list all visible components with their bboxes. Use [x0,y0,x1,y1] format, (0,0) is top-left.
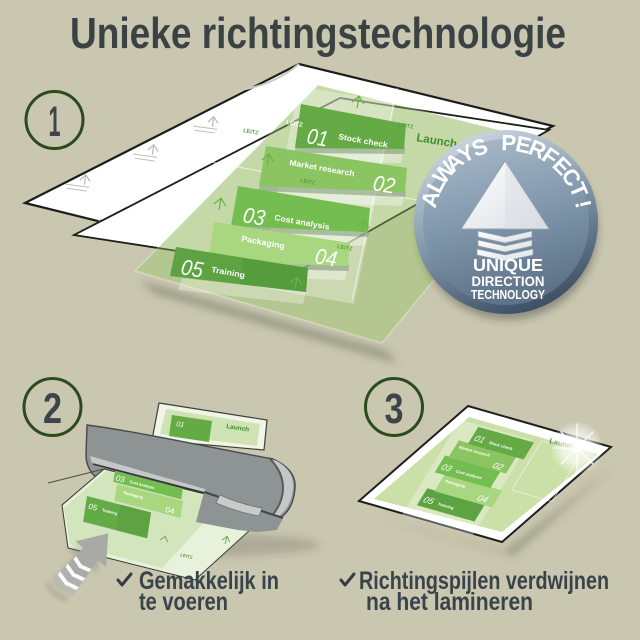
svg-text:te voeren: te voeren [139,588,228,616]
svg-text:UNIQUE: UNIQUE [473,255,543,275]
svg-text:04: 04 [313,243,339,271]
svg-text:TECHNOLOGY: TECHNOLOGY [471,288,546,302]
svg-text:01: 01 [176,421,185,429]
svg-text:3: 3 [385,385,404,433]
svg-text:na het lamineren: na het lamineren [366,588,533,616]
svg-text:2: 2 [43,385,62,433]
svg-text:02: 02 [371,170,397,198]
svg-text:Unieke richtingstechnologie: Unieke richtingstechnologie [70,9,566,58]
svg-text:DIRECTION: DIRECTION [472,274,545,289]
svg-text:1: 1 [49,98,61,146]
svg-text:01: 01 [305,123,330,151]
